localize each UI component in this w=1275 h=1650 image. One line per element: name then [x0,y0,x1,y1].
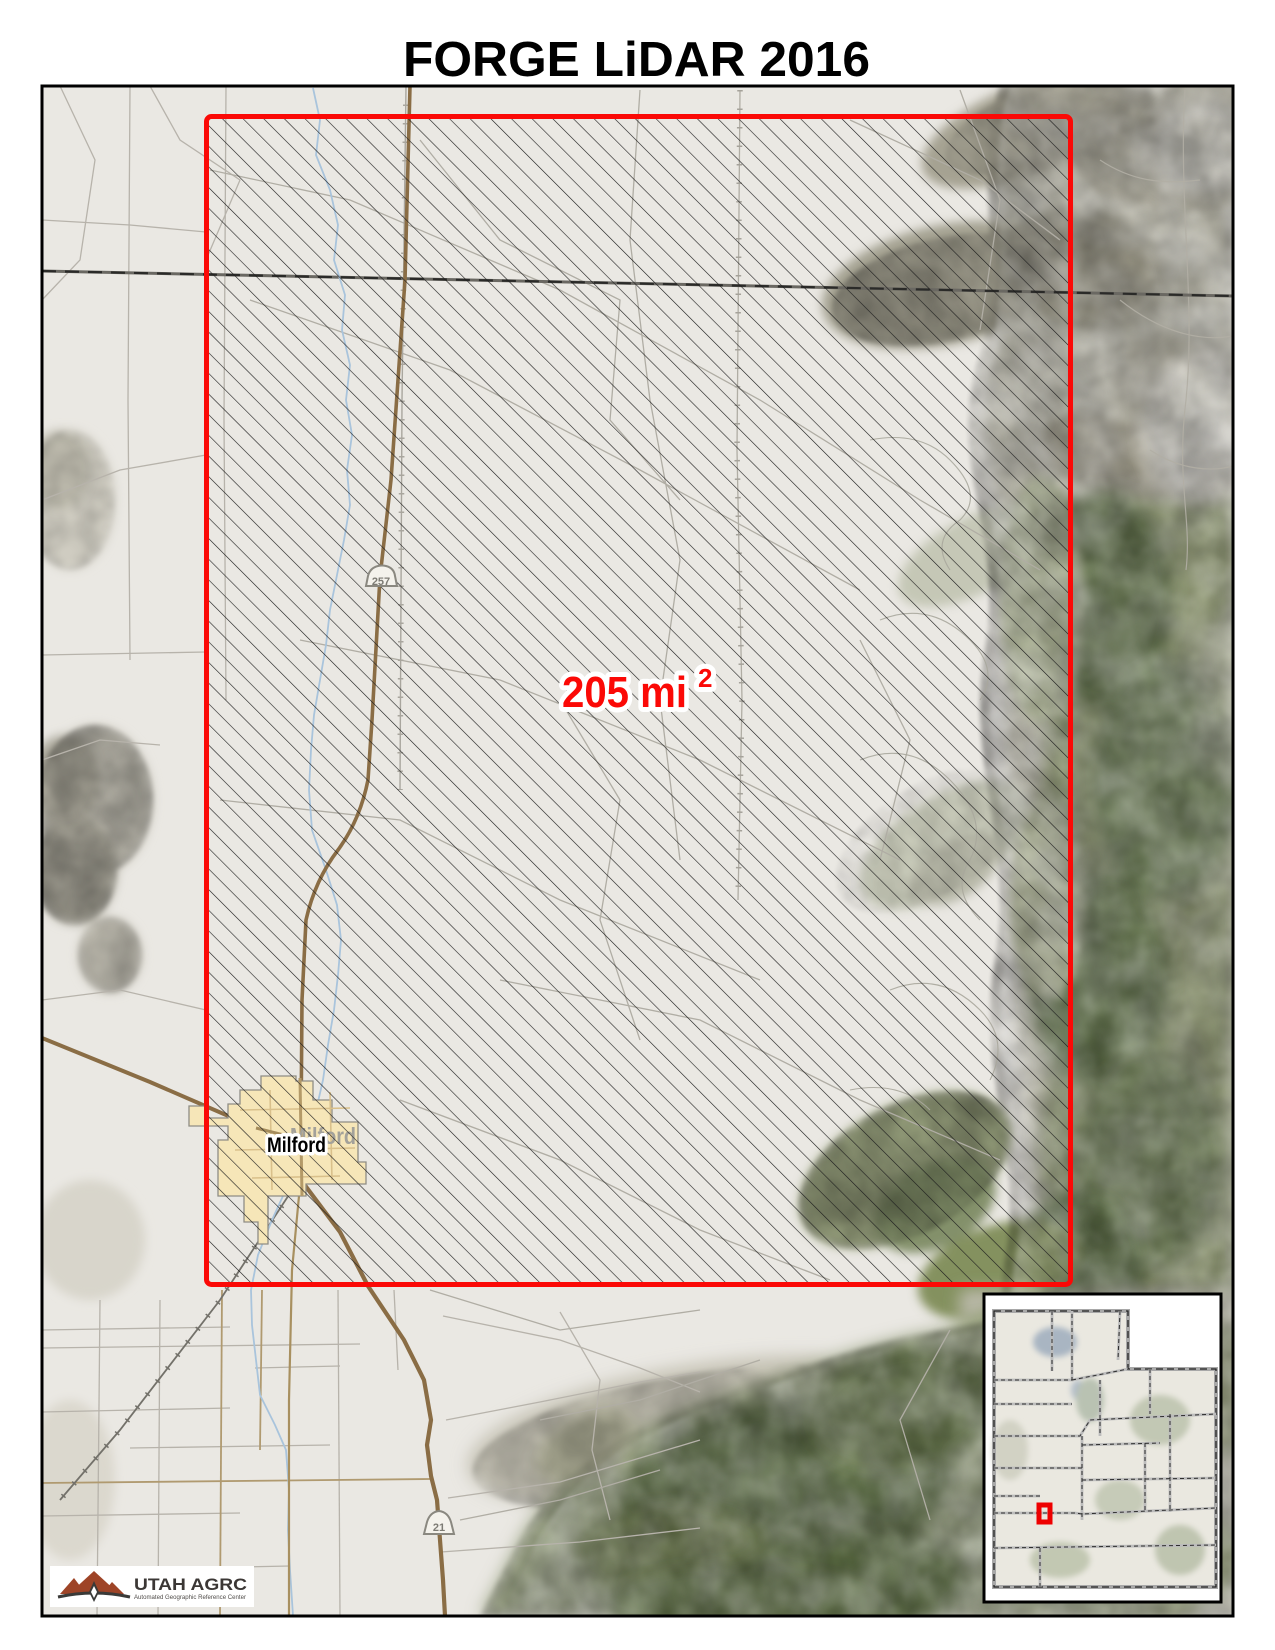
svg-text:UTAH AGRC: UTAH AGRC [134,1575,247,1594]
svg-text:21: 21 [433,1522,445,1534]
svg-text:FORGE LiDAR 2016: FORGE LiDAR 2016 [403,33,870,87]
svg-text:2: 2 [698,663,712,693]
svg-text:Milford: Milford [267,1134,326,1157]
svg-text:Automated Geographic Reference: Automated Geographic Reference Center [134,1595,246,1601]
svg-text:205 mi: 205 mi [562,668,687,717]
svg-text:257: 257 [372,576,390,588]
